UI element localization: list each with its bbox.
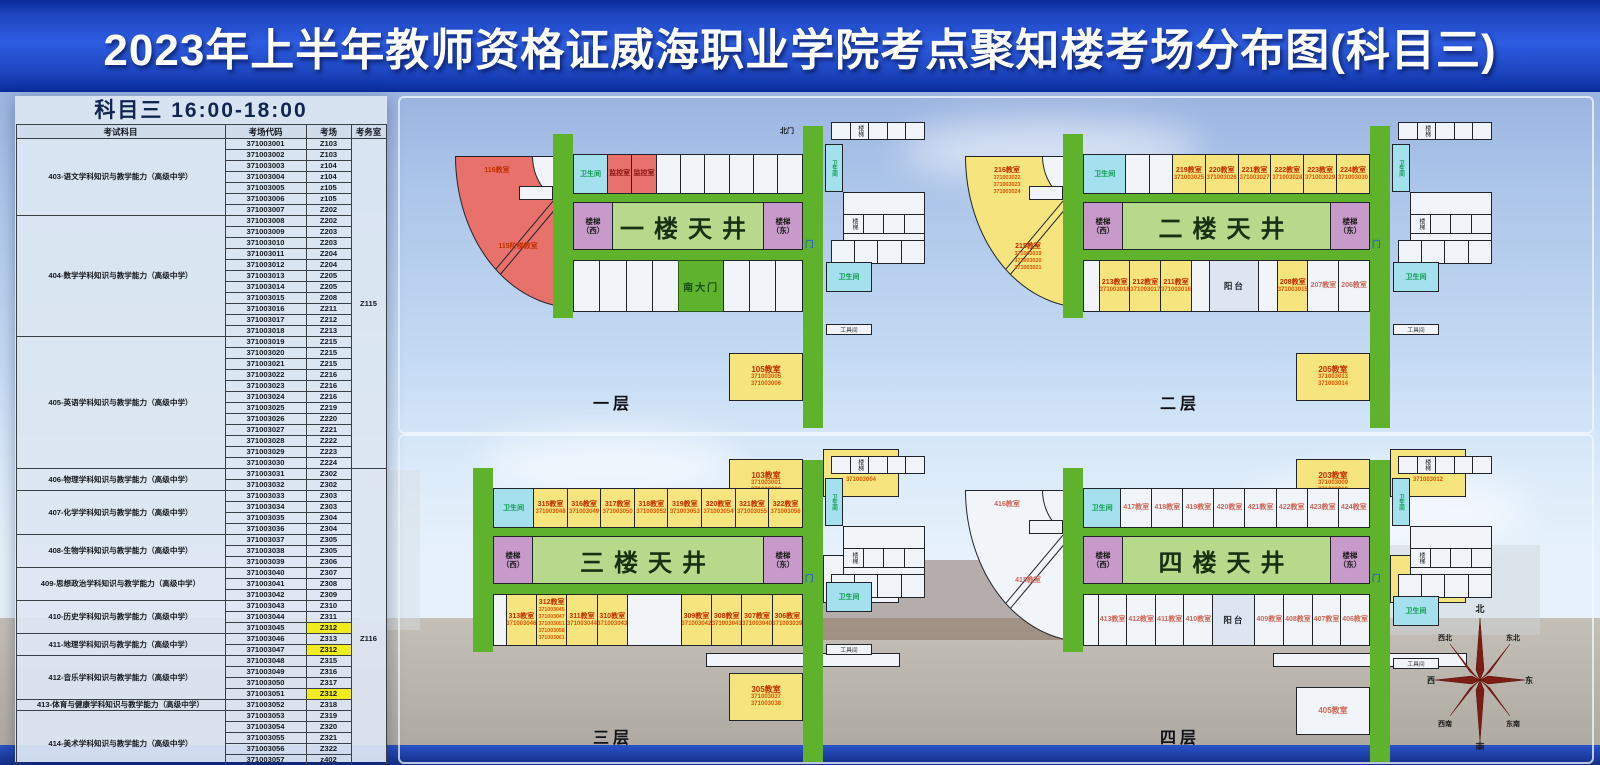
exam-code-cell: 371003054 <box>225 722 306 733</box>
empty-room <box>723 260 751 312</box>
exam-room-310教室: 310教室371003043 <box>597 594 628 646</box>
annex: 楼梯卫生间楼梯楼梯 <box>823 122 927 278</box>
room-411教室: 411教室 <box>1155 594 1185 646</box>
empty-room <box>599 260 627 312</box>
room-number-cell: Z319 <box>306 711 351 722</box>
empty-room <box>1191 260 1211 312</box>
exam-code-cell: 371003038 <box>225 546 306 557</box>
office-cell: Z115 <box>351 139 386 469</box>
room-number-cell: Z202 <box>306 205 351 216</box>
exam-code-cell: 371003050 <box>225 678 306 689</box>
room-row: 313教室371003046312教室371003045371003047371… <box>493 594 803 646</box>
exam-code-cell: 371003021 <box>225 359 306 370</box>
exam-code-cell: 371003031 <box>225 469 306 480</box>
exam-room-222教室: 222教室371003028 <box>1270 154 1304 194</box>
annex-stairs: 楼梯 <box>1417 456 1437 474</box>
exam-room-322教室: 322教室371003056 <box>768 488 803 528</box>
restroom-label: 卫生间 <box>839 592 860 602</box>
exam-code-cell: 371003029 <box>225 447 306 458</box>
restroom-label: 卫生间 <box>1397 494 1405 511</box>
exam-code-cell: 371003007 <box>225 205 306 216</box>
exam-room-221教室: 221教室371003027 <box>1238 154 1272 194</box>
exam-code-cell: 371003018 <box>225 326 306 337</box>
exam-room-321教室: 321教室371003055 <box>735 488 770 528</box>
room-exam-code: 371003040 <box>742 621 772 628</box>
exam-room-308教室: 308教室371003041 <box>711 594 742 646</box>
room-title: 308教室 <box>714 613 740 621</box>
annex-room <box>1444 240 1468 264</box>
room-title: 411教室 <box>1157 616 1182 624</box>
exam-code-cell: 371003051 <box>225 689 306 700</box>
room-title: 315教室 <box>538 501 564 509</box>
wing-room-305教室: 305教室371003037371003038 <box>729 673 803 721</box>
room-exam-code: 371003029 <box>1305 175 1335 182</box>
stairs-label: 楼梯 <box>586 217 601 226</box>
room-number-cell: Z305 <box>306 546 351 557</box>
fan-corner-rooms <box>1029 186 1063 200</box>
balcony: 阳台 <box>1212 594 1256 646</box>
empty-room <box>1083 594 1099 646</box>
room-exam-code: 371003056 <box>771 509 801 516</box>
annex-room <box>1398 456 1418 474</box>
room-title: 405教室 <box>1318 707 1347 715</box>
room-413教室: 413教室 <box>1098 594 1128 646</box>
room-407教室: 407教室 <box>1312 594 1342 646</box>
annex-room <box>877 240 901 264</box>
room-title: 221教室 <box>1242 167 1268 175</box>
fan-corner-rooms <box>1029 520 1063 534</box>
room-exam-code: 371003052 <box>636 509 666 516</box>
room-number-cell: Z308 <box>306 579 351 590</box>
floor-caption: 一层 <box>593 390 633 414</box>
room-number-cell: Z318 <box>306 700 351 711</box>
room-exam-code: 371003054 <box>703 509 733 516</box>
compass-icon: 北南东西东北西北东南西南 <box>1427 600 1533 750</box>
room-title: 319教室 <box>672 501 698 509</box>
restroom-label: 卫生间 <box>503 503 524 513</box>
annex-room <box>831 456 851 474</box>
annex-room <box>831 122 851 140</box>
exam-room-309教室: 309教室371003042 <box>681 594 712 646</box>
exam-room-311教室: 311教室371003044 <box>566 594 597 646</box>
room-exam-code: 371003030 <box>1338 175 1368 182</box>
stairs-label: （西） <box>502 560 525 569</box>
stairs-label: （西） <box>582 226 605 235</box>
annex-mid-row: 楼梯 <box>1410 548 1492 568</box>
stairs-label: 楼梯 <box>1423 459 1430 471</box>
room-title: 410教室 <box>1185 616 1211 624</box>
empty-room <box>680 154 706 194</box>
room-number-cell: z105 <box>306 194 351 205</box>
room-number-cell: Z204 <box>306 260 351 271</box>
room-title: 205教室 <box>1318 366 1347 374</box>
floor-plan: 116教室115阶梯教室卫生间监控室监控室楼梯（西）一楼天井楼梯（东）南大门楼梯… <box>408 98 968 433</box>
room-number-cell: Z312 <box>306 689 351 700</box>
room-exam-code: 371003045 <box>539 607 565 614</box>
wing-room-205教室: 205教室371003013371003014 <box>1296 353 1370 401</box>
table-row: 404-数学学科知识与教学能力（高级中学）371003008Z202 <box>16 216 386 227</box>
room-number-cell: Z103 <box>306 139 351 150</box>
room-exam-code: 371003025 <box>1174 175 1204 182</box>
exam-code-cell: 371003025 <box>225 403 306 414</box>
room-title: 310教室 <box>599 613 625 621</box>
utility-room: 工具间 <box>1393 324 1439 335</box>
room-410教室: 410教室 <box>1183 594 1213 646</box>
atrium-label: 一楼天井 <box>620 209 756 244</box>
room-title: 312教室 <box>539 599 565 607</box>
room-number-cell: Z304 <box>306 524 351 535</box>
exam-code-cell: 371003048 <box>225 656 306 667</box>
exam-room-320教室: 320教室371003054 <box>701 488 736 528</box>
room-exam-code: 371003015 <box>1278 287 1308 294</box>
room-exam-code: 371003019 <box>984 251 1072 258</box>
exam-code-cell: 371003043 <box>225 601 306 612</box>
table-header-row: 考试科目考场代码考场考务室 <box>16 125 386 139</box>
empty-room <box>1083 260 1100 312</box>
room-title: 407教室 <box>1314 616 1340 624</box>
utility-room-label: 工具间 <box>840 325 857 334</box>
room-exam-code: 371003018 <box>1100 287 1130 294</box>
atrium-row: 楼梯（西）一楼天井楼梯（东） <box>573 202 803 250</box>
room-115阶梯教室: 115阶梯教室 <box>474 243 562 251</box>
room-number-cell: Z221 <box>306 425 351 436</box>
annex-room <box>904 548 925 568</box>
annex-stairs: 楼梯 <box>850 456 870 474</box>
restroom-label: 卫生间 <box>830 160 838 177</box>
room-number-cell: Z211 <box>306 304 351 315</box>
annex-mid-row: 楼梯 <box>843 548 925 568</box>
table-row: 409-思想政治学科知识与教学能力（高级中学）371003040Z307 <box>16 568 386 579</box>
stairs-label: （东） <box>772 560 795 569</box>
room-title: 421教室 <box>1248 504 1274 512</box>
room-exam-code: 371003014 <box>1318 381 1348 388</box>
annex-stairs: 楼梯 <box>1417 122 1437 140</box>
exam-code-cell: 371003016 <box>225 304 306 315</box>
south-gate-label: 南大门 <box>683 279 719 294</box>
exam-room-307教室: 307教室371003040 <box>741 594 772 646</box>
annex-room <box>863 214 884 234</box>
exam-code-cell: 371003006 <box>225 194 306 205</box>
svg-text:北: 北 <box>1475 603 1484 614</box>
annex-room <box>1454 122 1474 140</box>
room-number-cell: Z203 <box>306 227 351 238</box>
atrium: 三楼天井 <box>532 536 764 584</box>
room-exam-code: 371003050 <box>603 509 633 516</box>
room-exam-code: 371003016 <box>1161 287 1191 294</box>
subject-cell: 414-美术学科知识与教学能力（高级中学） <box>16 711 225 765</box>
stairs-label: 楼梯 <box>1343 217 1358 226</box>
room-exam-code: 371003020 <box>984 258 1072 265</box>
svg-text:东南: 东南 <box>1506 719 1520 728</box>
stairs-label: 楼梯 <box>1096 217 1111 226</box>
exam-code-cell: 371003023 <box>225 381 306 392</box>
svg-text:西南: 西南 <box>1438 719 1452 728</box>
wing-restroom: 卫生间 <box>826 262 872 292</box>
annex-room <box>901 574 925 598</box>
room-number-cell: Z315 <box>306 656 351 667</box>
room-number-cell: Z215 <box>306 337 351 348</box>
annex-restroom: 卫生间 <box>825 478 843 526</box>
stairs-label: 楼梯 <box>856 459 863 471</box>
room-exam-code: 371003027 <box>1240 175 1270 182</box>
empty-room <box>729 154 755 194</box>
utility-room-label: 工具间 <box>840 645 857 654</box>
svg-text:西北: 西北 <box>1438 633 1452 642</box>
room-409教室: 409教室 <box>1254 594 1284 646</box>
room-row: 413教室412教室411教室410教室阳台409教室408教室407教室406… <box>1083 594 1370 646</box>
room-exam-code: 371003006 <box>751 381 781 388</box>
utility-room: 工具间 <box>826 324 872 335</box>
room-title: 307教室 <box>744 613 770 621</box>
exam-code-cell: 371003042 <box>225 590 306 601</box>
annex-room <box>854 240 878 264</box>
room-number-cell: Z312 <box>306 623 351 634</box>
annex-mid-row: 楼梯 <box>843 214 925 234</box>
room-row: 卫生间219教室371003025220教室371003026221教室3710… <box>1083 154 1370 194</box>
wing-restroom: 卫生间 <box>826 582 872 612</box>
room-title: 309教室 <box>684 613 710 621</box>
room-exam-code: 371003058 <box>539 628 565 635</box>
room-number-cell: z402 <box>306 755 351 765</box>
exam-room-224教室: 224教室371003030 <box>1336 154 1370 194</box>
room-number-cell: Z311 <box>306 612 351 623</box>
stairs-east: 楼梯（东） <box>1330 202 1370 250</box>
room-number-cell: Z302 <box>306 469 351 480</box>
annex-room <box>1435 456 1455 474</box>
room-exam-code: 371003046 <box>506 621 536 628</box>
room-title: 313教室 <box>509 613 535 621</box>
east-corridor <box>1370 126 1390 428</box>
exam-room-315教室: 315教室371003048 <box>533 488 568 528</box>
annex-room <box>1398 574 1422 598</box>
atrium-label: 二楼天井 <box>1159 209 1295 244</box>
exam-room-318教室: 318教室371003052 <box>634 488 669 528</box>
empty-room <box>626 260 654 312</box>
annex-room <box>1421 574 1445 598</box>
svg-text:南: 南 <box>1475 741 1484 750</box>
restroom: 卫生间 <box>1083 154 1127 194</box>
exam-code-cell: 371003044 <box>225 612 306 623</box>
annex-restroom: 卫生间 <box>1392 144 1410 192</box>
annex-bottom-row <box>1398 574 1492 598</box>
east-corridor <box>1370 460 1390 762</box>
north-gate-label: 北门 <box>780 126 794 136</box>
exam-room-317教室: 317教室371003050 <box>600 488 635 528</box>
subject-cell: 412-音乐学科知识与教学能力（高级中学） <box>16 656 225 700</box>
room-title: 116教室 <box>462 167 532 175</box>
exam-code-cell: 371003017 <box>225 315 306 326</box>
room-number-cell: Z223 <box>306 447 351 458</box>
exam-room-313教室: 313教室371003046 <box>506 594 537 646</box>
room-number-cell: Z205 <box>306 271 351 282</box>
exam-code-cell: 371003057 <box>225 755 306 765</box>
stairs-west: 楼梯（西） <box>493 536 533 584</box>
room-number-cell: Z321 <box>306 733 351 744</box>
column-header: 考务室 <box>351 125 386 139</box>
annex-room <box>1435 122 1455 140</box>
atrium-row: 楼梯（西）二楼天井楼梯（东） <box>1083 202 1370 250</box>
room-number-cell: Z213 <box>306 326 351 337</box>
room-title: 406教室 <box>1342 616 1368 624</box>
exam-code-cell: 371003052 <box>225 700 306 711</box>
room-title: 105教室 <box>751 366 780 374</box>
exam-code-cell: 371003010 <box>225 238 306 249</box>
exam-code-cell: 371003053 <box>225 711 306 722</box>
room-exam-code: 371003048 <box>536 509 566 516</box>
annex-room <box>883 548 904 568</box>
stairs-east: 楼梯（东） <box>763 202 803 250</box>
room-title: 223教室 <box>1307 167 1333 175</box>
room-title: 216教室 <box>972 167 1042 175</box>
exam-code-cell: 371003037 <box>225 535 306 546</box>
subject-cell: 405-英语学科知识与教学能力（高级中学） <box>16 337 225 469</box>
empty-room <box>652 260 680 312</box>
door-label: 门 <box>805 572 814 584</box>
exam-code-cell: 371003047 <box>225 645 306 656</box>
annex-room <box>1398 240 1422 264</box>
room-422教室: 422教室 <box>1276 488 1308 528</box>
exam-code-cell: 371003040 <box>225 568 306 579</box>
monitor-room: 监控室 <box>607 154 633 194</box>
room-number-cell: Z204 <box>306 249 351 260</box>
door-label: 门 <box>1372 572 1381 584</box>
exam-code-cell: 371003011 <box>225 249 306 260</box>
annex-room <box>831 240 855 264</box>
room-title: 413教室 <box>1100 616 1126 624</box>
exam-code-cell: 371003002 <box>225 150 306 161</box>
floor-caption: 二层 <box>1160 390 1200 414</box>
room-415教室: 415教室 <box>984 577 1072 585</box>
room-number-cell: Z317 <box>306 678 351 689</box>
room-number-cell: Z224 <box>306 458 351 469</box>
annex-top-row: 楼梯 <box>1398 456 1492 474</box>
annex: 楼梯卫生间楼梯楼梯 <box>1390 456 1494 612</box>
stairs-west: 楼梯（西） <box>573 202 613 250</box>
exam-room-211教室: 211教室371003016 <box>1160 260 1192 312</box>
room-title: 115阶梯教室 <box>474 243 562 251</box>
room-exam-code: 371003005 <box>751 374 781 381</box>
room-row: 卫生间417教室418教室419教室420教室421教室422教室423教室42… <box>1083 488 1370 528</box>
room-exam-code: 371003028 <box>1272 175 1302 182</box>
empty-room <box>777 154 803 194</box>
room-number-cell: Z304 <box>306 513 351 524</box>
restroom: 卫生间 <box>1083 488 1121 528</box>
fan-corner-rooms <box>519 186 553 200</box>
exam-code-cell: 371003032 <box>225 480 306 491</box>
panel-heading: 科目三 16:00-18:00 <box>15 96 387 124</box>
stairs-label: 楼梯 <box>1417 218 1424 230</box>
monitor-room-label: 监控室 <box>609 170 630 178</box>
room-number-cell: Z219 <box>306 403 351 414</box>
annex-room <box>868 456 888 474</box>
balcony: 阳台 <box>1209 260 1259 312</box>
room-number-cell: Z222 <box>306 436 351 447</box>
annex-restroom: 卫生间 <box>1392 478 1410 526</box>
exam-code-cell: 371003041 <box>225 579 306 590</box>
room-number-cell: Z322 <box>306 744 351 755</box>
annex-room <box>863 548 884 568</box>
room-exam-code: 371003039 <box>772 621 802 628</box>
exam-room-316教室: 316教室371003049 <box>567 488 602 528</box>
room-408教室: 408教室 <box>1283 594 1313 646</box>
annex-room <box>868 122 888 140</box>
room-title: 321教室 <box>739 501 765 509</box>
restroom-label: 卫生间 <box>1397 160 1405 177</box>
exam-room-223教室: 223教室371003029 <box>1303 154 1337 194</box>
annex-stairs: 楼梯 <box>843 214 864 234</box>
utility-room-label: 工具间 <box>1407 659 1424 668</box>
restroom-label: 卫生间 <box>1406 272 1427 282</box>
room-424教室: 424教室 <box>1338 488 1370 528</box>
stairs-label: （东） <box>1339 226 1362 235</box>
room-title: 213教室 <box>1102 279 1128 287</box>
exam-room-213教室: 213教室371003018 <box>1099 260 1131 312</box>
table-row: 408-生物学科知识与教学能力（高级中学）371003037Z305 <box>16 535 386 546</box>
room-exam-code: 371003047 <box>539 614 565 621</box>
room-number-cell: Z309 <box>306 590 351 601</box>
stairs-east: 楼梯（东） <box>1330 536 1370 584</box>
svg-text:西: 西 <box>1427 676 1435 685</box>
east-corridor <box>803 126 823 428</box>
room-exam-code: 371003022 <box>972 175 1042 182</box>
exam-code-cell: 371003013 <box>225 271 306 282</box>
stairs-label: 楼梯 <box>506 551 521 560</box>
subject-cell: 407-化学学科知识与教学能力（高级中学） <box>16 491 225 535</box>
room-title: 316教室 <box>571 501 597 509</box>
room-title: 212教室 <box>1132 279 1158 287</box>
room-number-cell: Z302 <box>306 480 351 491</box>
empty-room <box>1149 154 1173 194</box>
room-number-cell: Z310 <box>306 601 351 612</box>
exam-room-220教室: 220教室371003026 <box>1205 154 1239 194</box>
annex-room <box>905 456 925 474</box>
room-number-cell: Z202 <box>306 216 351 227</box>
exam-code-cell: 371003022 <box>225 370 306 381</box>
room-exam-code: 371003017 <box>1130 287 1160 294</box>
column-header: 考场代码 <box>225 125 306 139</box>
room-number-cell: z105 <box>306 183 351 194</box>
room-title: 417教室 <box>1123 504 1149 512</box>
stairs-label: 楼梯 <box>1417 552 1424 564</box>
restroom-label: 卫生间 <box>839 272 860 282</box>
room-number-cell: z104 <box>306 172 351 183</box>
room-title: 206教室 <box>1341 282 1367 290</box>
exam-code-cell: 371003035 <box>225 513 306 524</box>
annex-room <box>901 240 925 264</box>
stairs-label: 楼梯 <box>1096 551 1111 560</box>
atrium: 四楼天井 <box>1122 536 1331 584</box>
annex-room <box>887 122 907 140</box>
column-header: 考场 <box>306 125 351 139</box>
room-number-cell: Z216 <box>306 381 351 392</box>
annex-room <box>1472 122 1492 140</box>
room-row: 213教室371003018212教室371003017211教室3710030… <box>1083 260 1370 312</box>
room-421教室: 421教室 <box>1244 488 1276 528</box>
room-title: 412教室 <box>1128 616 1154 624</box>
stairs-label: 楼梯 <box>776 217 791 226</box>
door-label: 门 <box>805 238 814 250</box>
annex-stairs: 楼梯 <box>850 122 870 140</box>
office-cell: Z116 <box>351 469 386 765</box>
room-exam-code: 371003044 <box>567 621 597 628</box>
room-title: 317教室 <box>605 501 631 509</box>
atrium-label: 三楼天井 <box>580 543 716 578</box>
utility-room-label: 工具间 <box>1407 325 1424 334</box>
subject-cell: 410-历史学科知识与教学能力（高级中学） <box>16 601 225 634</box>
room-number-cell: Z220 <box>306 414 351 425</box>
wing-room-405教室: 405教室 <box>1296 687 1370 735</box>
subject-cell: 413-体育与健康学科知识与教学能力（高级中学） <box>16 700 225 711</box>
